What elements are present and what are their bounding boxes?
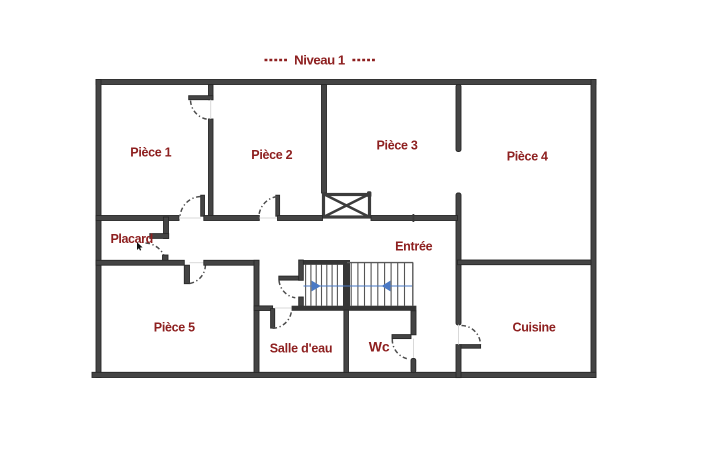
svg-text:Cuisine: Cuisine [512, 321, 555, 335]
svg-text:Pièce 2: Pièce 2 [251, 148, 292, 162]
svg-text:Pièce 5: Pièce 5 [154, 320, 195, 334]
svg-text:Pièce 4: Pièce 4 [507, 150, 548, 164]
svg-text:Placard: Placard [111, 232, 153, 246]
svg-text:Entrée: Entrée [395, 240, 432, 254]
svg-text:Wc: Wc [369, 338, 390, 354]
svg-text:Pièce 3: Pièce 3 [377, 139, 418, 153]
svg-text:Niveau 1: Niveau 1 [294, 53, 345, 68]
svg-text:Pièce 1: Pièce 1 [130, 146, 171, 160]
svg-text:Salle d'eau: Salle d'eau [270, 341, 333, 355]
